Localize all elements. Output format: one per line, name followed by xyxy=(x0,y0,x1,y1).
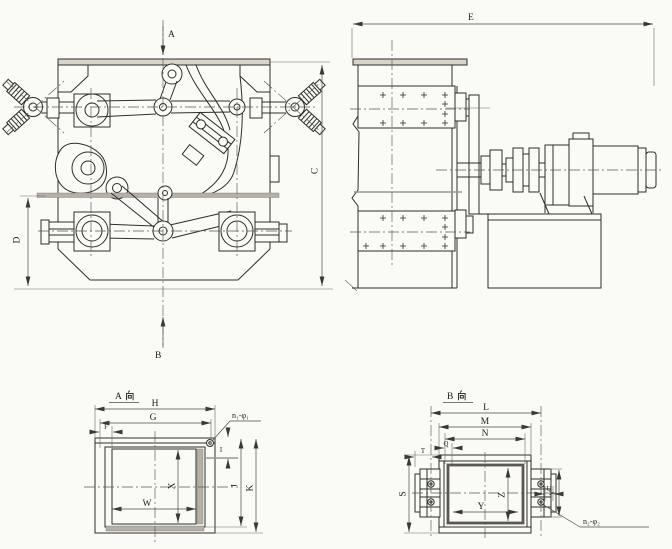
label-dim-f: F xyxy=(104,424,108,431)
xiang-character xyxy=(127,391,134,401)
label-view-a-title: A xyxy=(115,392,122,402)
label-dim-i: I xyxy=(220,447,223,454)
label-view-a-arrow: A xyxy=(168,30,175,40)
view-a-title: A xyxy=(109,391,139,403)
label-dim-e: E xyxy=(468,13,474,23)
label-view-b-arrow: B xyxy=(155,351,161,361)
drive-pedestal xyxy=(488,214,601,288)
label-dim-l: L xyxy=(483,403,489,413)
label-dim-x: X xyxy=(168,482,178,489)
label-dim-w: W xyxy=(143,499,152,509)
label-dim-q: Q xyxy=(444,441,449,448)
hole-note-2: n₂-φ₂ xyxy=(542,504,649,527)
side-machine-body xyxy=(345,59,490,291)
label-dim-v: V xyxy=(550,490,557,495)
technical-drawing: A B C D xyxy=(0,0,672,549)
label-dim-z: Z xyxy=(498,492,508,498)
label-view-b-title: B xyxy=(447,392,453,402)
view-b-title: B xyxy=(443,391,473,403)
label-dim-d: D xyxy=(13,236,23,243)
side-view: E xyxy=(345,13,662,291)
label-dim-n: N xyxy=(482,429,489,439)
hole-note-1: n₁-φ₁ xyxy=(212,411,261,441)
dimension-e: E xyxy=(352,13,654,86)
label-dim-j: J xyxy=(231,484,241,488)
label-dim-c: C xyxy=(311,168,321,174)
gearbox-housing xyxy=(569,139,593,206)
label-dim-t: T xyxy=(421,448,426,455)
label-dim-g: G xyxy=(150,413,157,423)
label-dim-h: H xyxy=(152,399,159,409)
drawing-canvas: A B C D xyxy=(0,0,672,549)
xiang-character xyxy=(459,391,466,401)
lower-flange xyxy=(358,211,455,251)
dimension-l: L xyxy=(431,403,541,413)
label-dim-m: M xyxy=(481,417,490,427)
view-b: B L xyxy=(399,391,650,539)
drive-frame-plate xyxy=(469,95,479,214)
upper-flange xyxy=(358,86,455,128)
front-lower-linkage xyxy=(37,143,287,251)
front-view: A B C D xyxy=(1,20,333,361)
label-dim-k: K xyxy=(246,484,256,491)
label-hole-note-1: n₁-φ₁ xyxy=(232,411,249,420)
view-arrow-a: A xyxy=(163,26,175,55)
view-arrow-b: B xyxy=(155,317,163,361)
drive-shaft-assembly xyxy=(457,133,656,214)
label-dim-y: Y xyxy=(478,502,485,512)
view-a: A H G F W X xyxy=(84,391,263,543)
label-dim-s: S xyxy=(399,491,409,496)
dimension-t: T xyxy=(406,448,440,467)
label-hole-note-2: n₂-φ₂ xyxy=(583,517,600,526)
bearing-housing xyxy=(545,145,569,205)
